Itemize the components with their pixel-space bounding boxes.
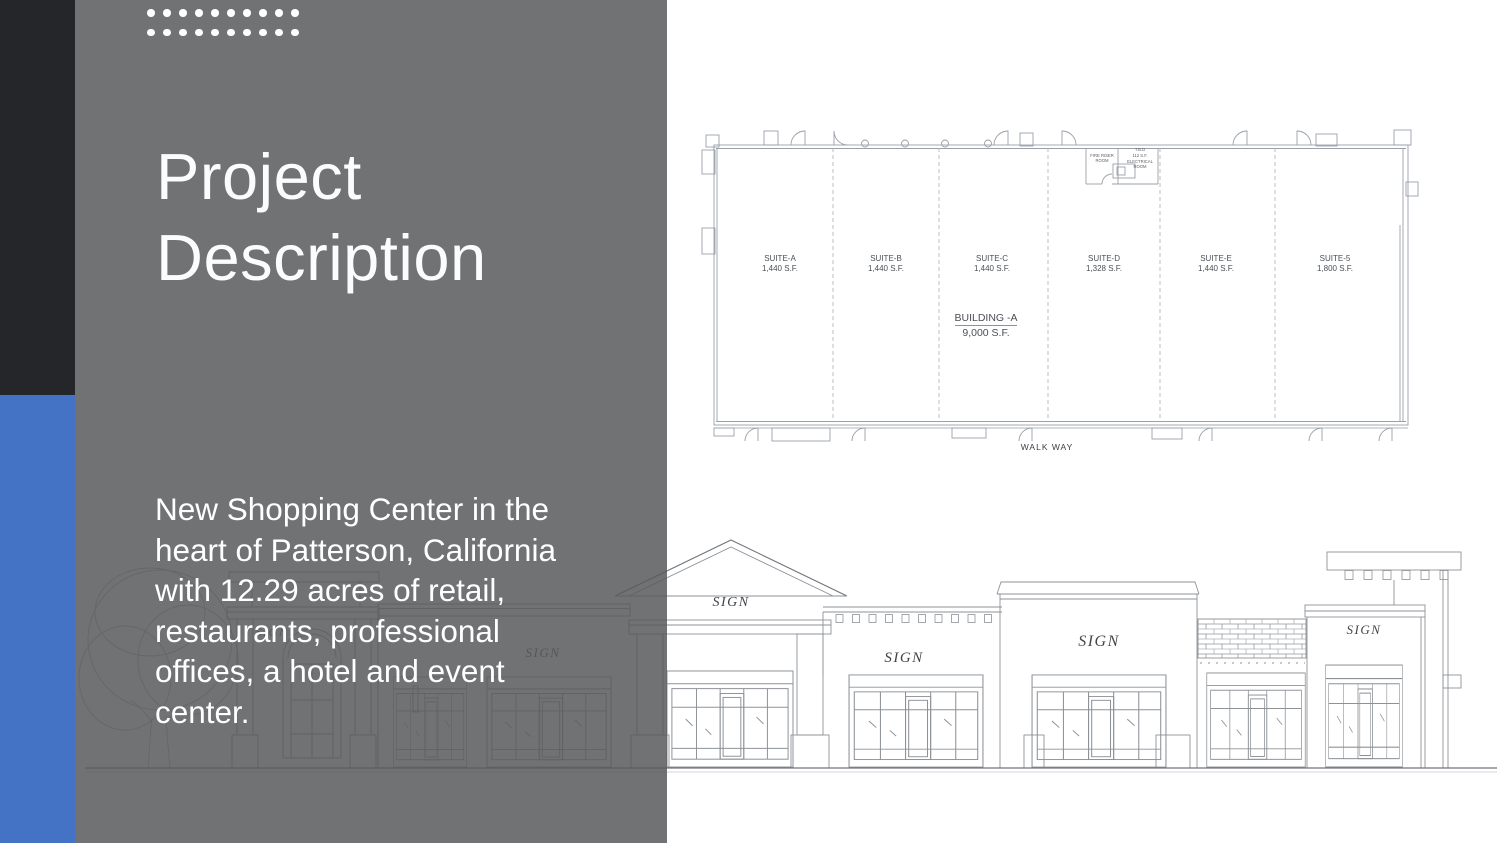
electrical-room-note: T.B.D	[1135, 147, 1145, 152]
dot	[195, 9, 203, 17]
dot	[211, 29, 219, 37]
sign-label-tower: SIGN	[1347, 622, 1382, 637]
building-name: BUILDING -A	[954, 312, 1017, 324]
left-bar-dark	[0, 0, 75, 395]
suite-5-name: SUITE-5	[1320, 254, 1351, 263]
body-line-5: offices, a hotel and event	[155, 651, 556, 692]
body-line-3: with 12.29 acres of retail,	[155, 570, 556, 611]
suite-a-area: 1,440 S.F.	[762, 264, 798, 273]
slide-title-line-1: Project	[156, 136, 487, 217]
dot	[275, 29, 283, 37]
dot	[275, 9, 283, 17]
suite-e-name: SUITE-E	[1200, 254, 1232, 263]
slide-title-line-2: Description	[156, 217, 487, 298]
dot	[179, 29, 187, 37]
suite-d-area: 1,328 S.F.	[1086, 264, 1122, 273]
dot	[147, 9, 155, 17]
electrical-room-label-2: ROOM	[1133, 164, 1147, 169]
suite-5-area: 1,800 S.F.	[1317, 264, 1353, 273]
dot	[227, 29, 235, 37]
suite-b-area: 1,440 S.F.	[868, 264, 904, 273]
suite-a-name: SUITE-A	[764, 254, 796, 263]
body-line-6: center.	[155, 692, 556, 733]
floor-plan-walls	[714, 145, 1408, 428]
dot	[163, 9, 171, 17]
floor-plan-labels: SUITE-A 1,440 S.F. SUITE-B 1,440 S.F. SU…	[762, 147, 1353, 452]
dot	[291, 9, 299, 17]
floor-plan-left-wall-details	[702, 150, 715, 254]
left-bar-blue	[0, 395, 75, 843]
presentation-slide: SUITE-A 1,440 S.F. SUITE-B 1,440 S.F. SU…	[0, 0, 1500, 843]
electrical-room-area: 112 S.F.	[1132, 153, 1147, 158]
suite-c-area: 1,440 S.F.	[974, 264, 1010, 273]
dot	[259, 29, 267, 37]
slide-body-text: New Shopping Center in the heart of Patt…	[155, 489, 556, 732]
dot	[243, 29, 251, 37]
suite-e-area: 1,440 S.F.	[1198, 264, 1234, 273]
suite-c-name: SUITE-C	[976, 254, 1008, 263]
dot	[195, 29, 203, 37]
slide-title: Project Description	[156, 136, 487, 298]
body-line-2: heart of Patterson, California	[155, 530, 556, 571]
dentil-cornice-section	[823, 607, 1002, 767]
dot	[147, 29, 155, 37]
floor-plan-top-wall-details	[706, 130, 1411, 147]
brick-section	[1198, 619, 1306, 767]
dot	[291, 29, 299, 37]
tall-parapet-building	[997, 582, 1199, 768]
floor-plan-suite-dividers	[833, 148, 1275, 421]
sign-tower	[1305, 552, 1461, 768]
floor-plan: SUITE-A 1,440 S.F. SUITE-B 1,440 S.F. SU…	[702, 130, 1418, 452]
dot	[179, 9, 187, 17]
sign-label-parapet: SIGN	[1078, 633, 1120, 650]
floor-plan-bottom-wall-details	[714, 428, 1392, 441]
building-area: 9,000 S.F.	[962, 327, 1009, 339]
dot	[243, 9, 251, 17]
walkway-label: WALK WAY	[1021, 442, 1074, 452]
dot	[163, 29, 171, 37]
dots-decoration	[147, 9, 307, 36]
dot	[211, 9, 219, 17]
sign-label-gable: SIGN	[712, 595, 749, 610]
dot	[259, 9, 267, 17]
sign-label-dentil: SIGN	[884, 650, 923, 666]
body-line-1: New Shopping Center in the	[155, 489, 556, 530]
fire-riser-room-label-2: ROOM	[1095, 158, 1109, 163]
dot	[227, 9, 235, 17]
body-line-4: restaurants, professional	[155, 611, 556, 652]
suite-d-name: SUITE-D	[1088, 254, 1120, 263]
suite-b-name: SUITE-B	[870, 254, 902, 263]
